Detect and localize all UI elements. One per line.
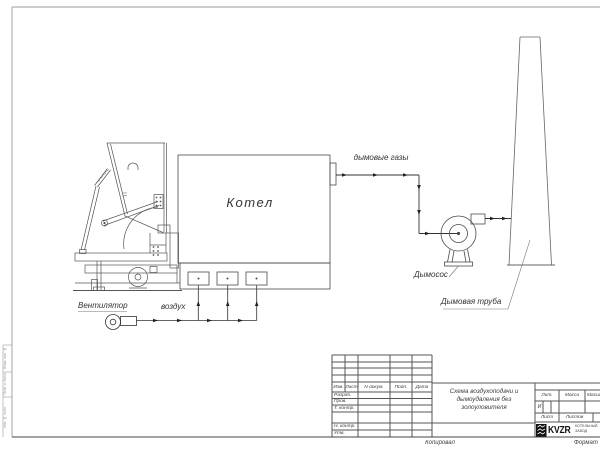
chimney-label: Дымовая труба — [441, 298, 501, 307]
lit-label: Лит. — [535, 393, 559, 398]
company-name: КОТЕЛЬНЫЙ ЗАВОД — [575, 424, 598, 433]
document-title-line-2: дымоудаления без — [433, 396, 535, 404]
drawing-frame — [12, 7, 600, 437]
kvzr-logo-icon — [536, 424, 547, 437]
side-stamp-cell-1: Взам. инв. № — [3, 345, 12, 372]
sheets-label: Листов — [559, 415, 590, 420]
titleblock-col-izm: Изм. — [332, 385, 345, 390]
titleblock-col-docnum: N докум. — [358, 385, 390, 390]
kvzr-logo-text: KVZR — [548, 424, 570, 436]
document-title: Схема воздухоподачи и дымоудаления без з… — [433, 388, 535, 412]
air-label: воздух — [161, 303, 185, 312]
titleblock-col-podp: Подп. — [390, 385, 412, 390]
company-name-line-2: ЗАВОД — [575, 429, 598, 434]
fan-label: Вентилятор — [78, 302, 128, 311]
flue-gas-line — [336, 173, 457, 235]
lit-value: И — [535, 404, 544, 410]
company-name-line-1: КОТЕЛЬНЫЙ — [575, 424, 598, 429]
schematic-linework — [0, 0, 600, 450]
titleblock-row-tkontr: Т. контр. — [334, 406, 355, 411]
drawing-sheet: Котел дымовые газы Дымосос Дымовая труба… — [0, 0, 600, 450]
side-stamp-cell-2: Подп. и дата — [3, 372, 12, 397]
titleblock-col-list: Лист — [345, 385, 358, 390]
chimney-drawing — [507, 37, 555, 265]
titleblock-col-data: Дата — [412, 385, 432, 390]
boiler-drawing — [178, 155, 336, 289]
titleblock-row-utv: Утв. — [334, 431, 345, 436]
sheet-label: Лист — [535, 415, 559, 420]
titleblock-row-nkontr: Н. контр. — [334, 424, 356, 429]
document-title-line-3: золоуловителя — [433, 404, 535, 412]
smoke-exhauster-label: Дымосос — [414, 271, 448, 280]
format-label: Формат — [574, 440, 600, 446]
mass-label: Масса — [559, 393, 585, 398]
document-title-line-1: Схема воздухоподачи и — [433, 388, 535, 396]
flue-gases-label: дымовые газы — [350, 154, 412, 163]
copied-label: Копировал — [420, 440, 460, 446]
smoke-exhauster-drawing — [441, 214, 511, 266]
titleblock-row-razrab: Разраб. — [334, 393, 351, 398]
stoker-machine-drawing — [73, 143, 182, 291]
titleblock-row-prov: Пров. — [334, 399, 347, 404]
side-stamp-cell-3: Инв. № подл. — [3, 397, 12, 437]
scale-label: Масштаб — [587, 393, 600, 398]
boiler-label: Котел — [218, 196, 282, 210]
